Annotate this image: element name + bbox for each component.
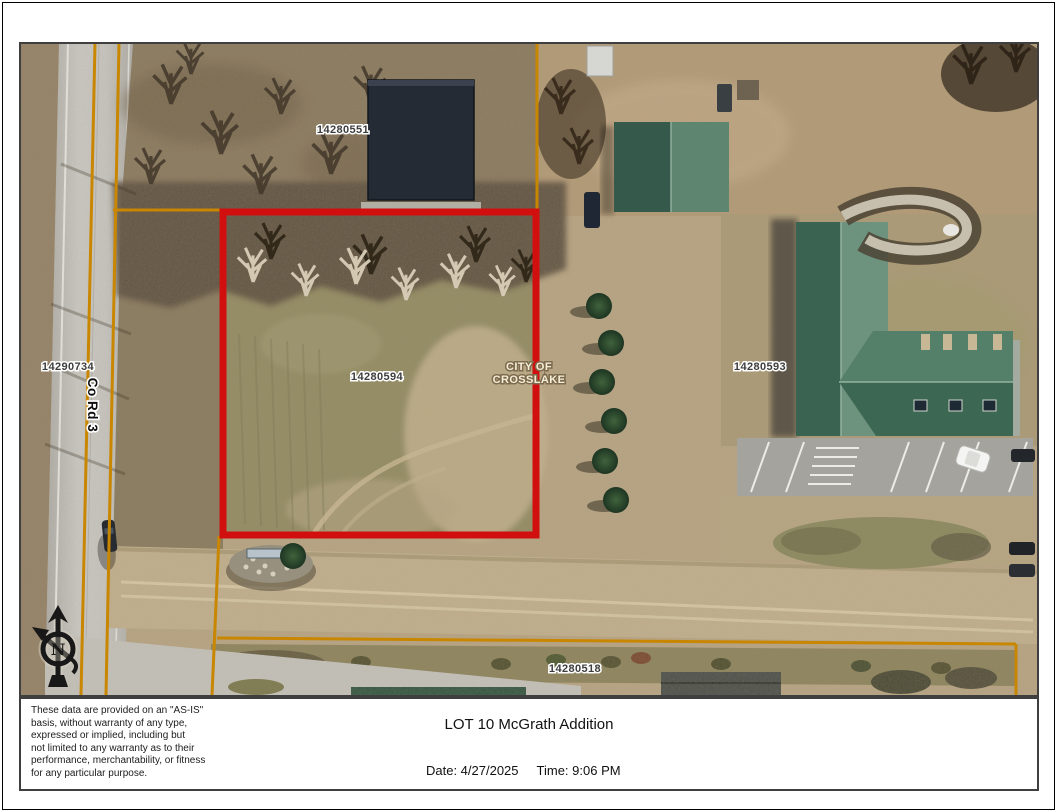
map-sheet: 14280551 14290734 14280594 14280593 1428… (19, 42, 1039, 791)
city-label-line2: CROSSLAKE (493, 374, 566, 386)
north-letter: N (51, 640, 66, 659)
disclaimer-line: performance, merchantability, or fitness (31, 755, 331, 768)
map-title: LOT 10 McGrath Addition (21, 716, 1037, 733)
disclaimer-line: not limited to any warranty as to their (31, 743, 331, 756)
time-label: Time: 9:06 PM (537, 763, 621, 778)
map-footer: These data are provided on an "AS-IS" ba… (19, 697, 1039, 791)
parcel-label-subject: 14280594 (351, 371, 404, 383)
parcel-label-south: 14280518 (549, 663, 601, 675)
city-label-line1: CITY OF (506, 361, 552, 373)
aerial-map-frame: 14280551 14290734 14280594 14280593 1428… (19, 42, 1039, 697)
dark-roof-building (361, 80, 481, 211)
parcel-label-west: 14290734 (42, 361, 95, 373)
date-label: Date: 4/27/2025 (426, 763, 519, 778)
dark-car (1009, 542, 1035, 555)
parcel-label-east: 14280593 (734, 361, 786, 373)
dark-car (1011, 449, 1035, 462)
date-time-row: Date: 4/27/2025Time: 9:06 PM (426, 763, 639, 778)
dark-car (1009, 564, 1035, 577)
disclaimer-line: for any particular purpose. (31, 768, 331, 781)
parcel-label-top: 14280551 (317, 124, 369, 136)
road-label: Co Rd 3 (85, 378, 100, 433)
aerial-map: 14280551 14290734 14280594 14280593 1428… (21, 44, 1037, 695)
